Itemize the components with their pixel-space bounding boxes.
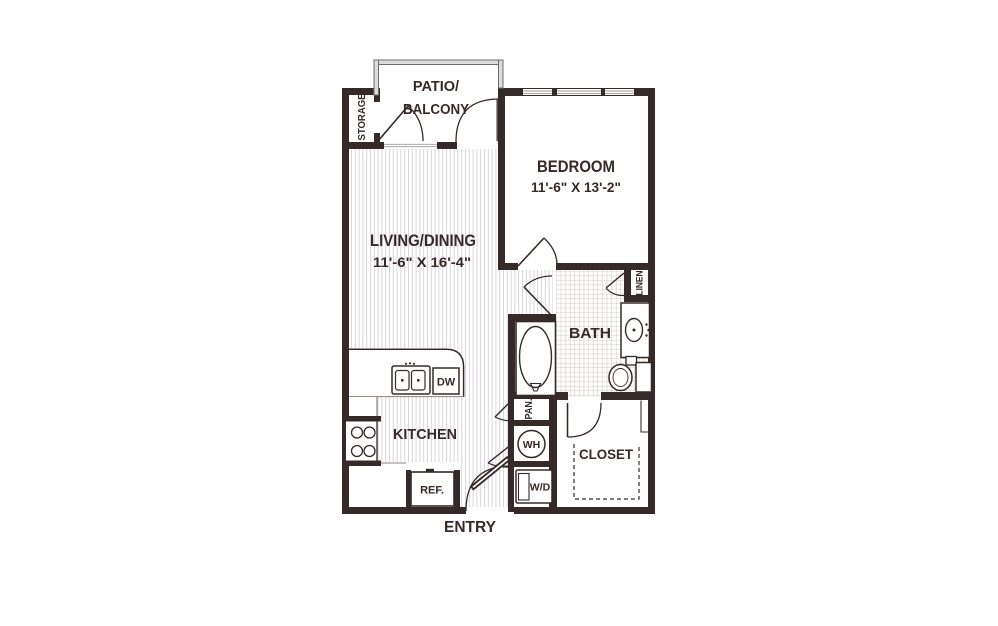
wall-living-top-mid — [437, 142, 457, 149]
wall-bedroom-left — [498, 88, 505, 270]
floorplan-page: PATIO/ BALCONY STORAGE BEDROOM 11'-6" X … — [0, 0, 998, 626]
water-heater-label: WH — [523, 439, 541, 451]
windows — [384, 89, 634, 149]
kitchen-sink — [392, 362, 430, 394]
bedroom-window-2 — [557, 89, 601, 95]
bath-vanity — [621, 303, 650, 365]
bedroom-window-3 — [605, 89, 634, 95]
wall-storage-stub-top — [374, 95, 380, 102]
linen-label: LINEN — [635, 270, 646, 295]
entry-label: ENTRY — [444, 519, 497, 536]
wall-bedroom-bottom-right — [556, 263, 655, 270]
bedroom-dims: 11'-6" X 13'-2" — [531, 180, 621, 195]
living-dims: 11'-6" X 16'-4" — [373, 255, 471, 270]
stove — [346, 422, 377, 461]
bathtub — [516, 322, 556, 396]
storage-label: STORAGE — [356, 94, 368, 141]
patio-label-line1: PATIO/ — [413, 79, 459, 95]
wall-stove-stub-top — [344, 416, 381, 422]
wall-stove-stub-bottom — [344, 461, 381, 467]
wall-tub-top — [508, 314, 556, 321]
pantry-label: PAN. — [524, 398, 535, 419]
wall-utility-left — [508, 392, 514, 512]
wall-bottom-right — [514, 507, 655, 514]
refrigerator-label: REF. — [420, 485, 444, 497]
wall-ref-jamb-right — [454, 470, 460, 507]
wall-bedroom-bottom-left — [498, 263, 518, 270]
wall-bottom-left — [342, 507, 466, 514]
living-label: LIVING/DINING — [370, 232, 476, 250]
wall-tub-left — [508, 314, 515, 399]
closet-door — [568, 403, 602, 437]
dishwasher-label: DW — [437, 377, 456, 389]
bedroom-door — [518, 238, 557, 266]
kitchen-label: KITCHEN — [393, 426, 457, 443]
floorplan-drawing: PATIO/ BALCONY STORAGE BEDROOM 11'-6" X … — [0, 0, 998, 626]
bedroom-label: BEDROOM — [537, 158, 615, 176]
washer-dryer-label: W/D — [530, 482, 551, 494]
living-window — [384, 143, 437, 149]
wall-living-top-left — [342, 142, 384, 149]
bedroom-window-1 — [523, 89, 552, 95]
patio-label-line2: BALCONY — [403, 102, 469, 118]
wall-bath-bottom-right — [601, 392, 655, 400]
closet-label: CLOSET — [579, 446, 633, 462]
bath-label: BATH — [569, 325, 611, 342]
